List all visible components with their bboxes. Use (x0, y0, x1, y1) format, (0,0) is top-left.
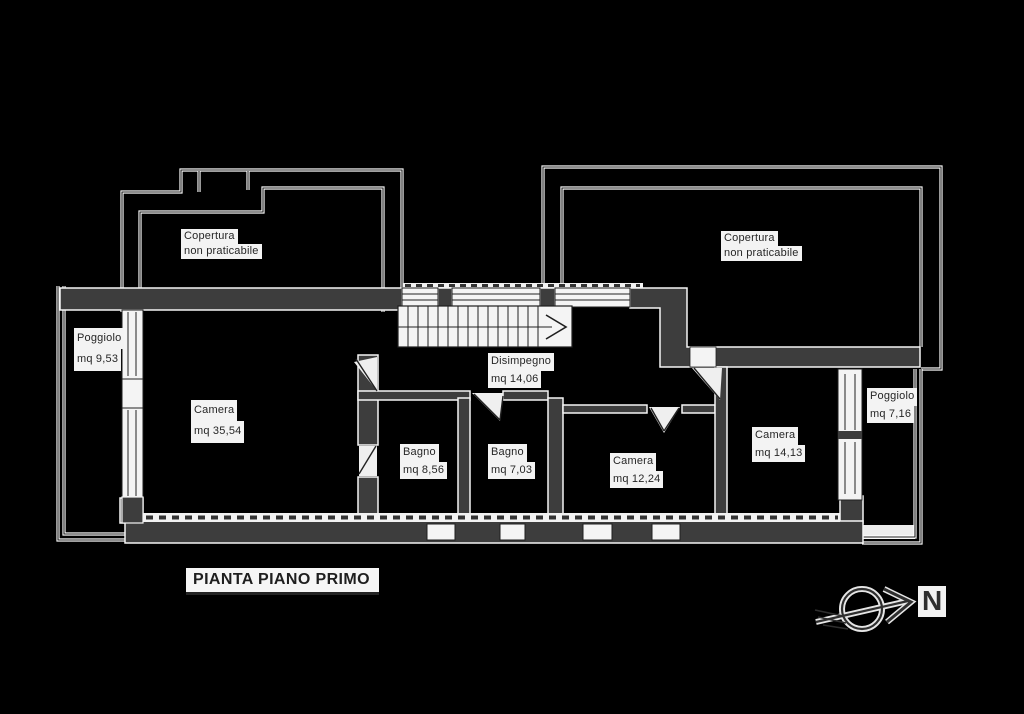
staircase (398, 306, 572, 347)
room-label-bagno-1: Bagno mq 8,56 (400, 444, 447, 479)
room-label-copertura-right: Copertura non praticabile (721, 231, 802, 261)
floor-plan-page: Copertura non praticabile Copertura non … (0, 0, 1024, 714)
room-label-camera-media: Camera mq 12,24 (610, 453, 663, 488)
room-label-poggiolo-left: Poggiolo mq 9,53 (74, 328, 124, 371)
room-label-camera-piccola: Camera mq 14,13 (752, 427, 805, 462)
window-left-band (122, 310, 143, 523)
window-top-band (402, 288, 630, 307)
room-label-copertura-left: Copertura non praticabile (181, 229, 262, 259)
north-label: N (918, 586, 946, 617)
room-label-poggiolo-right: Poggiolo mq 7,16 (867, 388, 917, 423)
door-bagno-1 (359, 446, 377, 476)
room-label-camera-grande: Camera mq 35,54 (191, 400, 244, 443)
room-label-disimpegno: Disimpegno mq 14,06 (488, 353, 554, 388)
window-right-band (838, 369, 862, 500)
page-title: PIANTA PIANO PRIMO (186, 568, 379, 595)
room-label-bagno-2: Bagno mq 7,03 (488, 444, 535, 479)
